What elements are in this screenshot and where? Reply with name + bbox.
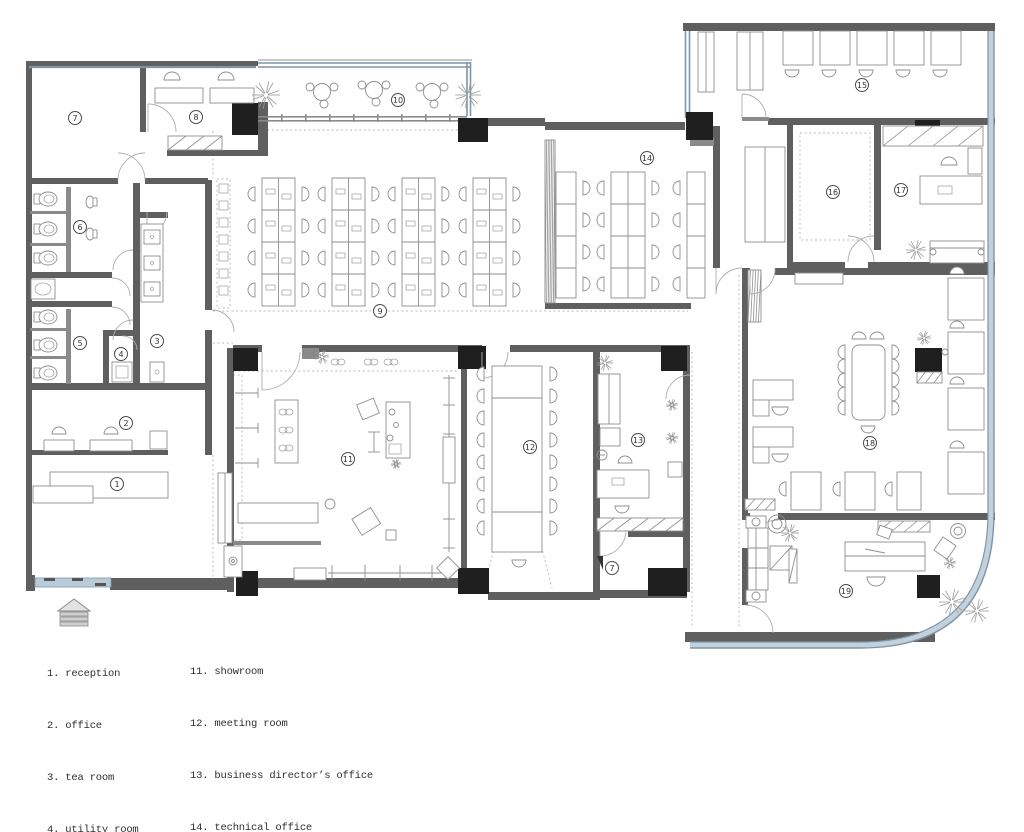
room-marker-8: 8 [190,111,203,124]
room-marker-16: 16 [827,186,840,199]
legend-item: 3. tea room [47,770,169,787]
legend-item: 13. business director’s office [190,768,373,785]
svg-text:17: 17 [896,186,906,195]
svg-text:19: 19 [841,587,851,596]
legend-column-1: 1. reception 2. office 3. tea room 4. ut… [47,631,169,832]
svg-text:14: 14 [642,154,652,163]
room-marker-14: 14 [641,152,654,165]
room-marker-5: 5 [74,337,87,350]
legend-column-2: 11. showroom 12. meeting room 13. busine… [190,629,373,832]
legend-item: 12. meeting room [190,716,373,733]
legend-item: 14. technical office [190,820,373,832]
entrance-icon [58,599,90,626]
svg-text:8: 8 [193,113,198,122]
svg-text:9: 9 [377,307,382,316]
room-marker-7: 7 [606,562,619,575]
svg-text:2: 2 [123,419,128,428]
svg-text:1: 1 [114,480,119,489]
svg-text:12: 12 [525,443,535,452]
svg-text:7: 7 [72,114,77,123]
svg-text:6: 6 [77,223,82,232]
legend-item: 4. utility room [47,822,169,832]
room-marker-1: 1 [111,478,124,491]
room-marker-3: 3 [151,335,164,348]
svg-text:15: 15 [857,81,867,90]
room-marker-15: 15 [856,79,869,92]
svg-text:4: 4 [118,350,123,359]
svg-text:5: 5 [77,339,82,348]
room-marker-2: 2 [120,417,133,430]
legend-item: 11. showroom [190,664,373,681]
svg-text:3: 3 [154,337,159,346]
legend-item: 2. office [47,718,169,735]
room-marker-13: 13 [632,434,645,447]
room-marker-12: 12 [524,441,537,454]
svg-text:16: 16 [828,188,838,197]
room-marker-17: 17 [895,184,908,197]
svg-text:7: 7 [609,564,614,573]
room-marker-6: 6 [74,221,87,234]
svg-text:13: 13 [633,436,643,445]
room-marker-18: 18 [864,437,877,450]
room-marker-4: 4 [115,348,128,361]
svg-text:11: 11 [343,455,353,464]
svg-text:18: 18 [865,439,875,448]
floor-plan-canvas: 781065342191415161711121371819 1. recept… [0,0,1024,832]
svg-text:10: 10 [393,96,403,105]
room-marker-19: 19 [840,585,853,598]
legend-item: 1. reception [47,666,169,683]
room-marker-7: 7 [69,112,82,125]
room-marker-11: 11 [342,453,355,466]
room-marker-9: 9 [374,305,387,318]
room-marker-10: 10 [392,94,405,107]
balcony-rail [258,116,467,122]
